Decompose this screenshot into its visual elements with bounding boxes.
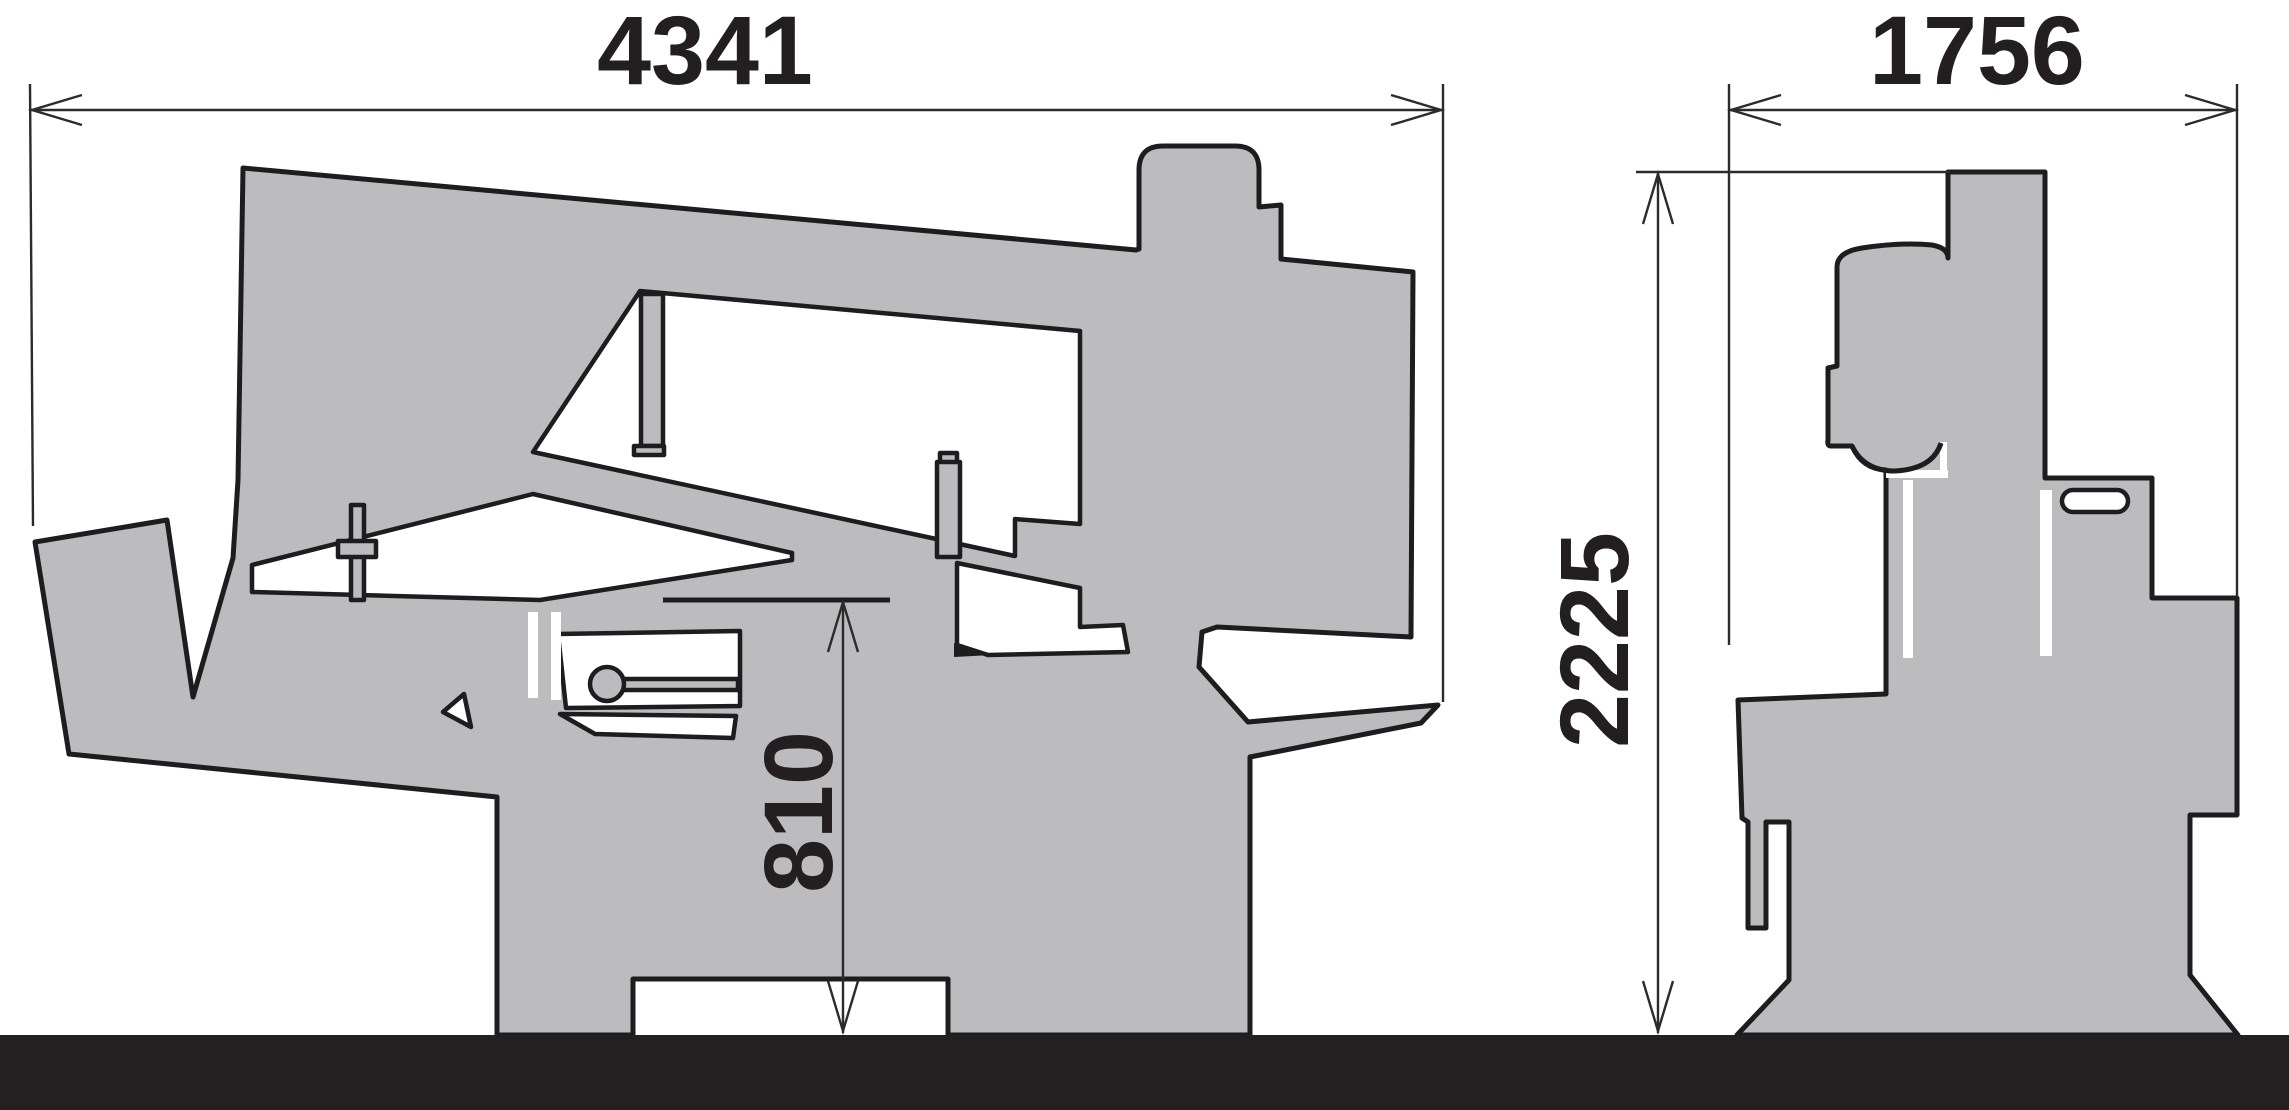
handle-hole	[2062, 490, 2128, 512]
dimension-table-height-value: 810	[744, 731, 853, 893]
column-slot	[1903, 480, 1913, 658]
vise-slot-left	[528, 612, 538, 698]
vise-handwheel	[590, 667, 624, 701]
floor-bar	[0, 1035, 2289, 1110]
drawing-canvas: 4341 1756 2225 810	[0, 0, 2289, 1110]
vise-box-cutout	[558, 631, 740, 708]
vise-slot-right	[551, 612, 561, 700]
right-guide-post	[937, 453, 960, 557]
dimension-overall-length-value: 4341	[597, 0, 813, 105]
side-view-body	[35, 146, 1438, 1035]
dimension-overall-height-value: 2225	[1540, 532, 1649, 748]
end-view-body	[1737, 172, 2238, 1035]
panel-slot	[2040, 490, 2052, 656]
end-view-machine	[1737, 172, 2238, 1035]
side-view-machine	[35, 146, 1438, 1035]
technical-drawing-page: 4341 1756 2225 810	[0, 0, 2289, 1110]
dimension-end-width-value: 1756	[1869, 0, 2085, 105]
vise-rod	[622, 679, 738, 690]
